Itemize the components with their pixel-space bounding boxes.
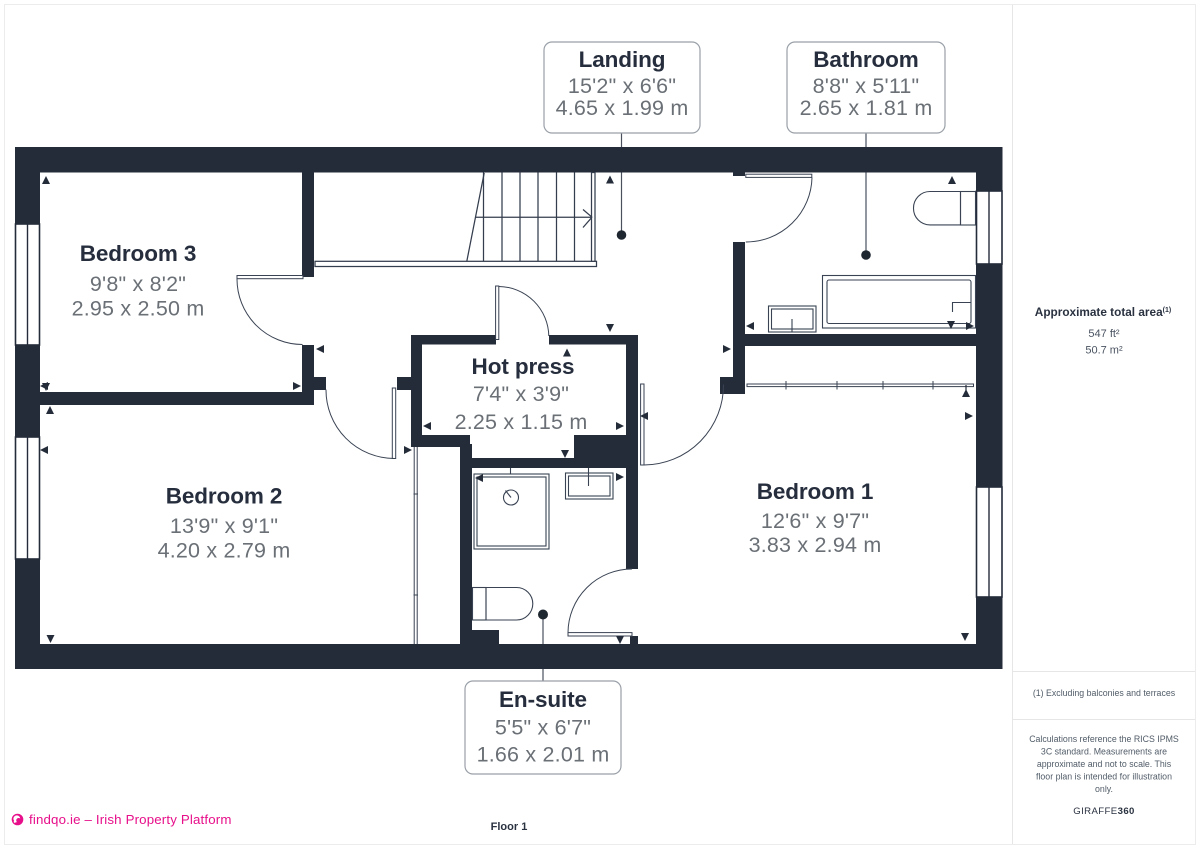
svg-text:En-suite: En-suite — [499, 687, 587, 712]
svg-text:2.95 x 2.50 m: 2.95 x 2.50 m — [72, 297, 205, 321]
svg-text:4.65 x 1.99 m: 4.65 x 1.99 m — [556, 96, 689, 120]
svg-text:Landing: Landing — [579, 47, 666, 72]
svg-text:7'4" x 3'9": 7'4" x 3'9" — [473, 382, 569, 406]
svg-text:1.66 x 2.01 m: 1.66 x 2.01 m — [477, 743, 610, 767]
svg-text:12'6" x 9'7": 12'6" x 9'7" — [761, 509, 869, 533]
svg-text:only.: only. — [1095, 784, 1113, 794]
svg-text:5'5" x 6'7": 5'5" x 6'7" — [495, 716, 591, 740]
svg-text:8'8" x 5'11": 8'8" x 5'11" — [813, 74, 920, 98]
svg-text:Floor 1: Floor 1 — [491, 821, 528, 833]
svg-text:Bedroom 1: Bedroom 1 — [757, 479, 874, 504]
svg-text:Bedroom 3: Bedroom 3 — [80, 241, 197, 266]
svg-text:15'2" x 6'6": 15'2" x 6'6" — [568, 74, 676, 98]
svg-text:approximate and not to scale.: approximate and not to scale. This — [1037, 759, 1172, 769]
svg-text:9'8" x 8'2": 9'8" x 8'2" — [90, 272, 186, 296]
svg-text:547 ft²: 547 ft² — [1088, 328, 1120, 340]
svg-text:Approximate total area(1): Approximate total area(1) — [1035, 305, 1171, 319]
svg-text:Bedroom 2: Bedroom 2 — [166, 484, 283, 509]
svg-text:3C standard. Measurements are: 3C standard. Measurements are — [1041, 747, 1167, 757]
svg-text:Calculations reference the RIC: Calculations reference the RICS IPMS — [1029, 734, 1179, 744]
svg-text:floor plan is intended for ill: floor plan is intended for illustration — [1036, 772, 1172, 782]
svg-text:2.65 x 1.81 m: 2.65 x 1.81 m — [800, 96, 933, 120]
svg-text:4.20 x 2.79 m: 4.20 x 2.79 m — [158, 539, 291, 563]
svg-text:50.7 m²: 50.7 m² — [1085, 345, 1123, 357]
svg-text:GIRAFFE360: GIRAFFE360 — [1073, 806, 1135, 817]
svg-text:13'9" x 9'1": 13'9" x 9'1" — [170, 514, 278, 538]
svg-text:(1) Excluding balconies and te: (1) Excluding balconies and terraces — [1033, 688, 1176, 698]
svg-text:findqo.ie – Irish Property Pla: findqo.ie – Irish Property Platform — [29, 812, 232, 827]
svg-text:Bathroom: Bathroom — [813, 47, 918, 72]
svg-text:Hot press: Hot press — [472, 354, 575, 379]
svg-text:2.25 x 1.15 m: 2.25 x 1.15 m — [455, 410, 588, 434]
svg-text:3.83 x 2.94 m: 3.83 x 2.94 m — [749, 533, 882, 557]
